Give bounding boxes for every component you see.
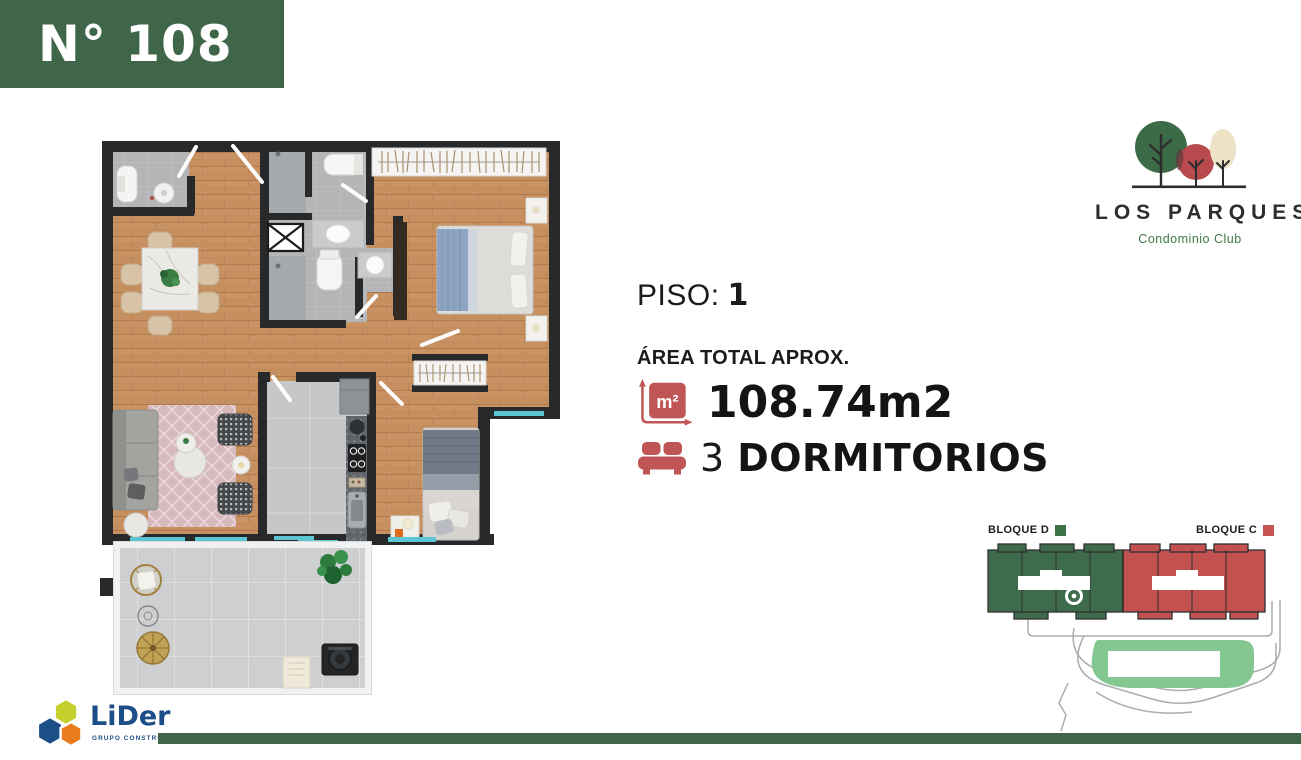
tv-cabinet	[394, 222, 407, 320]
block-c-swatch	[1263, 525, 1274, 536]
flyer-page: N° 108	[0, 0, 1301, 760]
brand-logo: LOS PARQUES Condominio Club	[1095, 115, 1285, 246]
duct-shaft	[268, 224, 303, 251]
bedrooms-label: DORMITORIOS	[737, 436, 1049, 480]
sofa-icon	[637, 441, 687, 476]
fridge	[340, 379, 369, 414]
builder-name: LiDer	[90, 701, 171, 732]
storage-box	[283, 657, 310, 688]
bed	[437, 226, 533, 314]
floor-row: PISO:1	[637, 278, 1049, 313]
area-label: ÁREA TOTAL APROX.	[637, 347, 1049, 370]
svg-text:m²: m²	[656, 390, 678, 411]
lider-hexagons-icon	[30, 695, 88, 753]
bed-2	[423, 428, 479, 540]
park	[1092, 640, 1254, 688]
sink	[348, 492, 366, 528]
block-d-label: BLOQUE D	[988, 524, 1066, 536]
bbq-grill	[322, 644, 358, 675]
unit-number-banner: N° 108	[0, 0, 284, 88]
trees-icon	[1120, 115, 1260, 195]
terrace-chair	[131, 565, 161, 595]
armchair	[218, 414, 252, 445]
sofa	[113, 410, 158, 510]
closet-2	[414, 361, 486, 385]
building	[988, 544, 1265, 619]
builder-logo: LiDer GRUPO CONSTRUCTOR	[30, 695, 180, 753]
brand-name: LOS PARQUES	[1095, 201, 1285, 225]
armchair	[218, 483, 252, 514]
floor-value: 1	[728, 278, 749, 313]
area-row: m² 108.74m2	[637, 377, 1049, 428]
floor-plan	[100, 138, 570, 698]
floor-plan-drawing	[100, 138, 570, 698]
terrace-pouf	[137, 632, 169, 664]
site-plan: BLOQUE D BLOQUE C	[980, 520, 1301, 735]
block-d-swatch	[1055, 525, 1066, 536]
site-plan-drawing	[980, 540, 1301, 735]
bedrooms-count: 3	[700, 436, 724, 480]
bedrooms-row: 3 DORMITORIOS	[637, 436, 1049, 480]
block-c-label: BLOQUE C	[1196, 524, 1274, 536]
unit-number: N° 108	[0, 15, 233, 73]
brand-subtitle: Condominio Club	[1095, 232, 1285, 246]
terrace	[114, 542, 372, 695]
footer-bar	[158, 733, 1301, 744]
stove	[348, 444, 366, 472]
living-room	[113, 405, 252, 537]
square-meters-icon: m²	[637, 378, 694, 428]
unit-info: PISO:1 ÁREA TOTAL APROX. m² 108.74m2 3 D…	[637, 278, 1049, 480]
area-value: 108.74m2	[707, 377, 953, 428]
floor-label: PISO:	[637, 279, 720, 312]
closet	[372, 148, 546, 176]
